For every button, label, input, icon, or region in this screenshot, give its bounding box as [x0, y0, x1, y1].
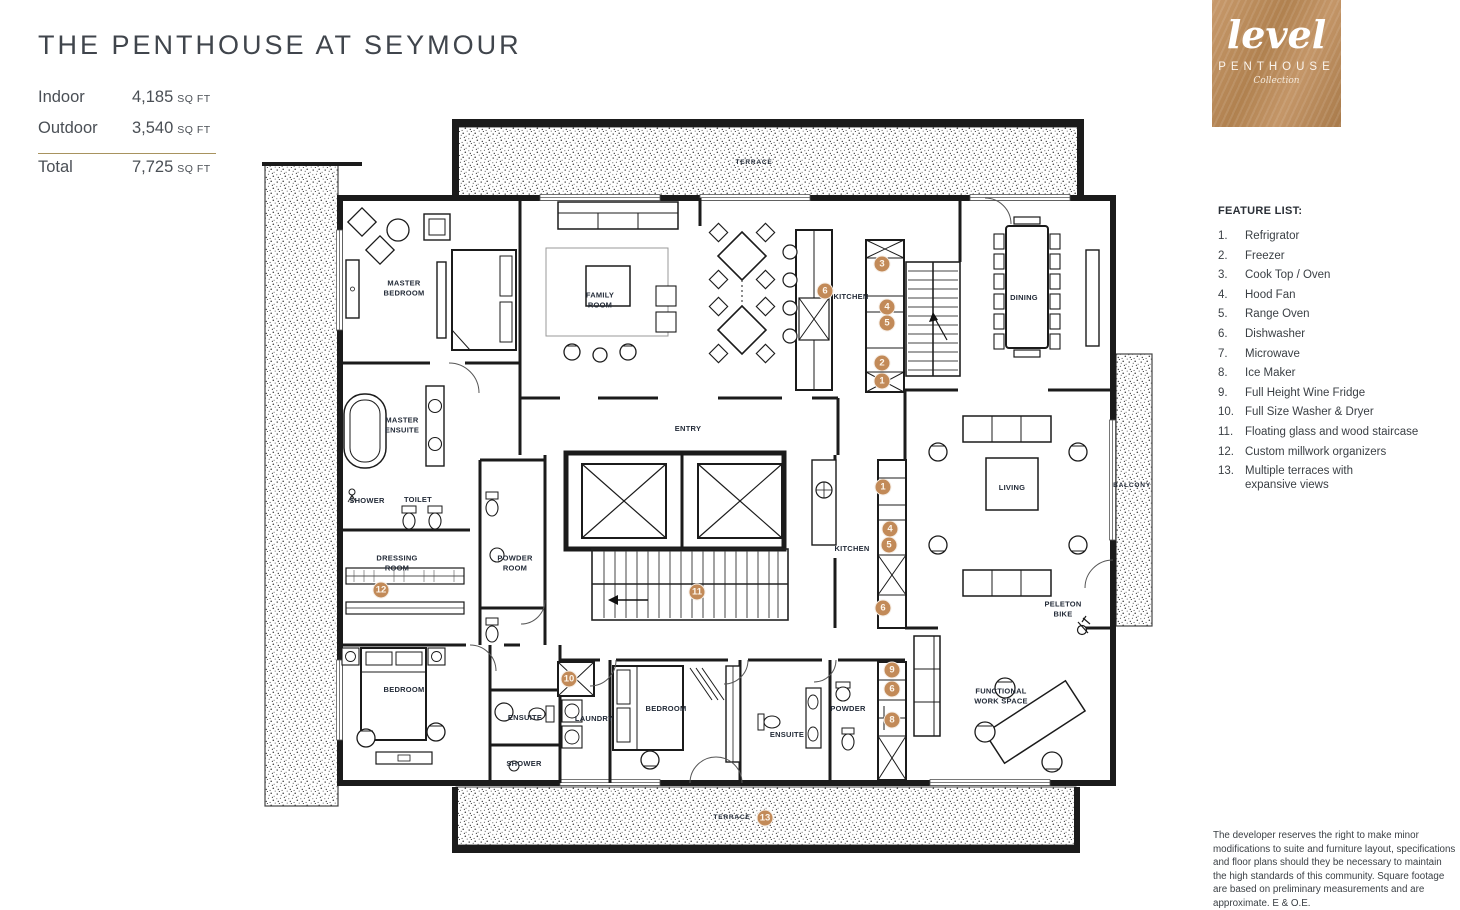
feature-marker-9: 9: [884, 662, 901, 679]
feature-marker-11: 11: [689, 584, 706, 601]
feature-marker-3: 3: [874, 256, 891, 273]
feature-marker-6: 6: [817, 283, 834, 300]
elevator-core: [566, 453, 784, 549]
feature-marker-6: 6: [884, 681, 901, 698]
feature-marker-6: 6: [875, 600, 892, 617]
feature-marker-5: 5: [879, 315, 896, 332]
feature-marker-4: 4: [882, 521, 899, 538]
feature-marker-1: 1: [875, 479, 892, 496]
floor-plan-drawing: [0, 0, 1460, 897]
feature-marker-1: 1: [874, 373, 891, 390]
floor-plan: TERRACETERRACEBALCONYMASTER BEDROOMFAMIL…: [0, 0, 1460, 897]
feature-marker-10: 10: [561, 671, 578, 688]
feature-marker-4: 4: [879, 299, 896, 316]
feature-marker-8: 8: [884, 712, 901, 729]
feature-marker-13: 13: [757, 810, 774, 827]
feature-marker-5: 5: [881, 537, 898, 554]
feature-marker-2: 2: [874, 355, 891, 372]
feature-marker-12: 12: [373, 582, 390, 599]
